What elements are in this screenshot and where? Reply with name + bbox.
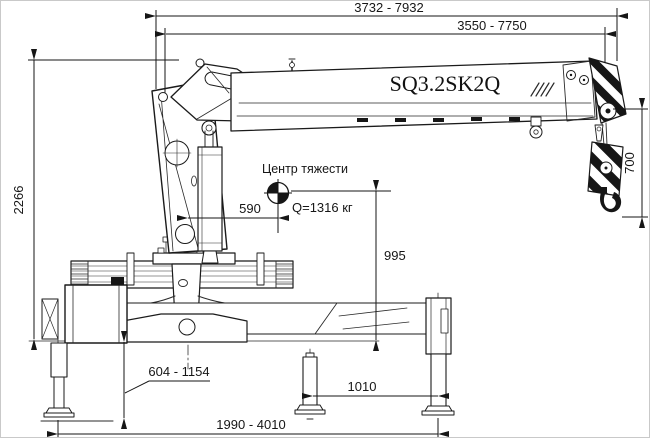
cross-member: [123, 314, 247, 342]
boom-pivot-pin: [202, 121, 216, 135]
dim-cog-height-text: 995: [384, 248, 406, 263]
dim-leg-extension-text: 604 - 1154: [148, 364, 209, 379]
center-of-gravity-group: Центр тяжести Q=1316 кг: [262, 162, 353, 233]
outrigger-leg-middle: [295, 353, 325, 419]
dim-overall-height-text: 2266: [11, 186, 26, 215]
dim-boom-length-text: 3550 - 7750: [457, 18, 526, 33]
cog-symbol: [264, 179, 292, 207]
crane-outline-drawing: SQ3.2SK2Q: [0, 0, 650, 438]
dim-rear-leg-spacing: 1010: [313, 379, 438, 396]
model-label: SQ3.2SK2Q: [390, 71, 501, 96]
telescopic-boom: SQ3.2SK2Q: [231, 61, 597, 138]
oil-tank: [65, 277, 127, 343]
cog-load-label: Q=1316 кг: [292, 200, 353, 215]
dim-leg-extension: 604 - 1154: [124, 342, 210, 418]
dim-cog-offset-text: 590: [239, 201, 261, 216]
luffing-cylinder: [198, 131, 222, 263]
outrigger-leg-left: [44, 343, 74, 417]
cog-label: Центр тяжести: [262, 162, 348, 176]
dim-hook-drop-text: 700: [622, 152, 637, 174]
crane-drawing-svg: SQ3.2SK2Q: [1, 1, 650, 438]
column-hole-lower: [176, 225, 195, 244]
outrigger-leg-right: [422, 298, 454, 415]
dim-rear-leg-spacing-text: 1010: [348, 379, 377, 394]
dim-overall-length-text: 3732 - 7932: [354, 1, 423, 15]
dim-outrigger-span: 1990 - 4010: [58, 417, 438, 438]
crane-machine: SQ3.2SK2Q: [29, 55, 643, 421]
left-bracket: [42, 299, 58, 339]
dim-outrigger-span-text: 1990 - 4010: [216, 417, 285, 432]
